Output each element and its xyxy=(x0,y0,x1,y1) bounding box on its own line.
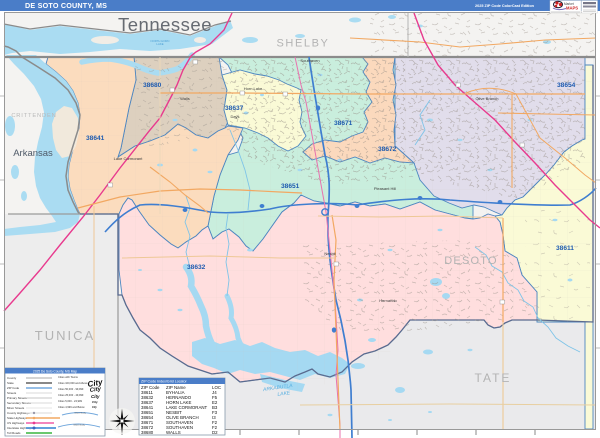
svg-text:City: City xyxy=(91,394,100,399)
svg-text:ZIP Code: ZIP Code xyxy=(7,386,20,390)
svg-text:Cities 100,000 and Above: Cities 100,000 and Above xyxy=(58,381,88,385)
svg-text:Tennessee: Tennessee xyxy=(118,14,212,35)
svg-text:Minor Streets: Minor Streets xyxy=(7,406,25,410)
svg-text:D2: D2 xyxy=(212,430,218,435)
svg-text:Pleasant Hill: Pleasant Hill xyxy=(374,186,396,191)
svg-text:WALLS: WALLS xyxy=(166,430,181,435)
svg-text:Water Body: Water Body xyxy=(73,424,85,427)
svg-text:MAPS: MAPS xyxy=(566,6,578,11)
svg-text:38637: 38637 xyxy=(225,105,244,112)
svg-text:Hernando: Hernando xyxy=(379,298,397,303)
svg-text:Arkansas: Arkansas xyxy=(13,148,53,159)
svg-text:CRITTENDEN: CRITTENDEN xyxy=(11,113,56,119)
svg-text:DE SOTO COUNTY, MS: DE SOTO COUNTY, MS xyxy=(25,1,107,10)
svg-text:Toll Roads: Toll Roads xyxy=(7,431,21,435)
svg-text:Primary Streets: Primary Streets xyxy=(7,396,27,400)
svg-text:38680: 38680 xyxy=(141,430,154,435)
svg-text:Streets: Streets xyxy=(7,391,17,395)
svg-text:US Highways: US Highways xyxy=(7,421,25,425)
svg-text:38680: 38680 xyxy=(143,82,162,89)
svg-text:Horn Lake: Horn Lake xyxy=(244,86,263,91)
svg-text:38632: 38632 xyxy=(187,264,206,271)
svg-text:Lake Cormorant: Lake Cormorant xyxy=(114,156,144,161)
svg-text:Olive Branch: Olive Branch xyxy=(476,96,499,101)
svg-text:TATE: TATE xyxy=(475,371,512,385)
svg-text:Cities 25,000 - 49,999: Cities 25,000 - 49,999 xyxy=(58,393,84,397)
svg-text:38671: 38671 xyxy=(334,120,353,127)
svg-text:County: County xyxy=(7,376,17,380)
svg-text:Water Body: Water Body xyxy=(74,412,86,415)
svg-text:Cities with Towns: Cities with Towns xyxy=(58,375,79,379)
svg-text:2025 De Soto County, MS Map: 2025 De Soto County, MS Map xyxy=(33,369,77,373)
svg-text:38641: 38641 xyxy=(86,135,105,142)
svg-text:ZIP Code Index/Grid Locator: ZIP Code Index/Grid Locator xyxy=(141,380,187,384)
svg-text:City: City xyxy=(92,406,97,409)
svg-text:Walls: Walls xyxy=(180,96,190,101)
svg-text:SHELBY: SHELBY xyxy=(276,38,329,50)
svg-text:Southaven: Southaven xyxy=(300,58,319,63)
svg-text:Cities 4,999 and Below: Cities 4,999 and Below xyxy=(58,405,85,409)
svg-text:LAKE: LAKE xyxy=(156,42,163,46)
svg-text:2025 ZIP Code ColorCast Editio: 2025 ZIP Code ColorCast Edition xyxy=(475,4,535,8)
svg-text:Days: Days xyxy=(230,114,239,119)
svg-text:State Highways: State Highways xyxy=(7,416,28,420)
svg-text:DESOTO: DESOTO xyxy=(444,255,497,267)
svg-text:Cities 5,000 - 24,999: Cities 5,000 - 24,999 xyxy=(58,399,82,403)
svg-text:State: State xyxy=(7,381,14,385)
svg-text:TUNICA: TUNICA xyxy=(35,328,95,343)
svg-text:Nesbit: Nesbit xyxy=(324,251,336,256)
svg-text:Cities 50,000 - 99,999: Cities 50,000 - 99,999 xyxy=(58,387,84,391)
svg-text:38611: 38611 xyxy=(556,245,574,252)
svg-text:38672: 38672 xyxy=(378,146,397,153)
svg-text:38654: 38654 xyxy=(557,82,576,89)
svg-text:City: City xyxy=(92,400,98,404)
svg-text:38651: 38651 xyxy=(281,183,300,190)
